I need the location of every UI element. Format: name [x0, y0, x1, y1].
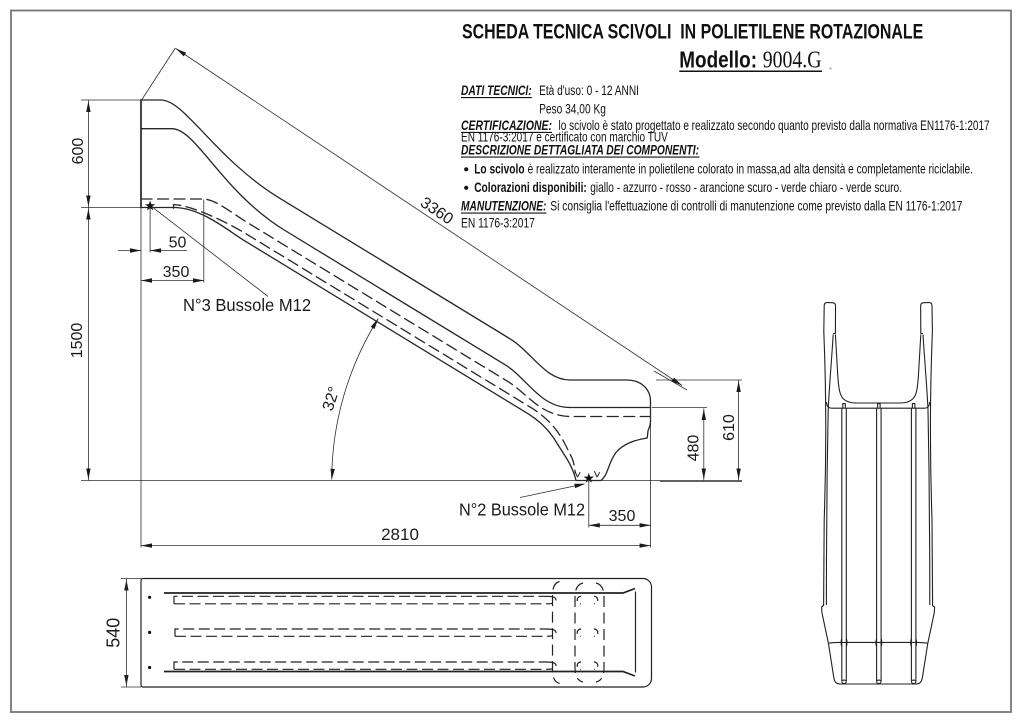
svg-text:3360: 3360	[417, 194, 456, 228]
svg-text:1500: 1500	[69, 323, 86, 359]
svg-text:9004.G: 9004.G	[763, 46, 822, 73]
svg-text:MANUTENZIONE:: MANUTENZIONE:	[461, 198, 546, 214]
svg-text:540: 540	[104, 618, 124, 648]
svg-text:600: 600	[70, 138, 87, 165]
svg-text:N°3 Bussole M12: N°3 Bussole M12	[183, 294, 311, 315]
svg-text:giallo - azzurro - rosso - ara: giallo - azzurro - rosso - arancione scu…	[590, 180, 902, 196]
svg-text:EN 1176-3:2017: EN 1176-3:2017	[461, 215, 535, 231]
svg-text:Colorazioni disponibili:: Colorazioni disponibili:	[474, 180, 587, 196]
svg-text:350: 350	[609, 508, 636, 525]
svg-text:Lo scivolo: Lo scivolo	[474, 161, 524, 177]
svg-text:DESCRIZIONE DETTAGLIATA DEI CO: DESCRIZIONE DETTAGLIATA DEI COMPONENTI:	[461, 142, 699, 158]
svg-text:50: 50	[169, 235, 187, 252]
svg-text:Peso 34,00 Kg: Peso 34,00 Kg	[539, 101, 606, 117]
svg-text:SCHEDA TECNICA SCIVOLI IN POL: SCHEDA TECNICA SCIVOLI IN POLIETILENE RO…	[462, 19, 923, 43]
svg-text:DATI TECNICI:: DATI TECNICI:	[461, 83, 532, 99]
svg-text:350: 350	[163, 264, 190, 281]
svg-text:480: 480	[686, 435, 703, 462]
svg-text:Età d'uso: 0 - 12 ANNI: Età d'uso: 0 - 12 ANNI	[539, 83, 639, 99]
svg-text:N°2 Bussole M12: N°2 Bussole M12	[459, 499, 585, 520]
svg-text:Si consiglia l'effettuazione d: Si consiglia l'effettuazione di controll…	[550, 198, 962, 214]
svg-text:2810: 2810	[381, 525, 419, 544]
svg-text:610: 610	[721, 414, 738, 441]
svg-text:Modello:: Modello:	[679, 48, 757, 73]
svg-text:è realizzato interamente in po: è realizzato interamente in polietilene …	[528, 161, 973, 177]
